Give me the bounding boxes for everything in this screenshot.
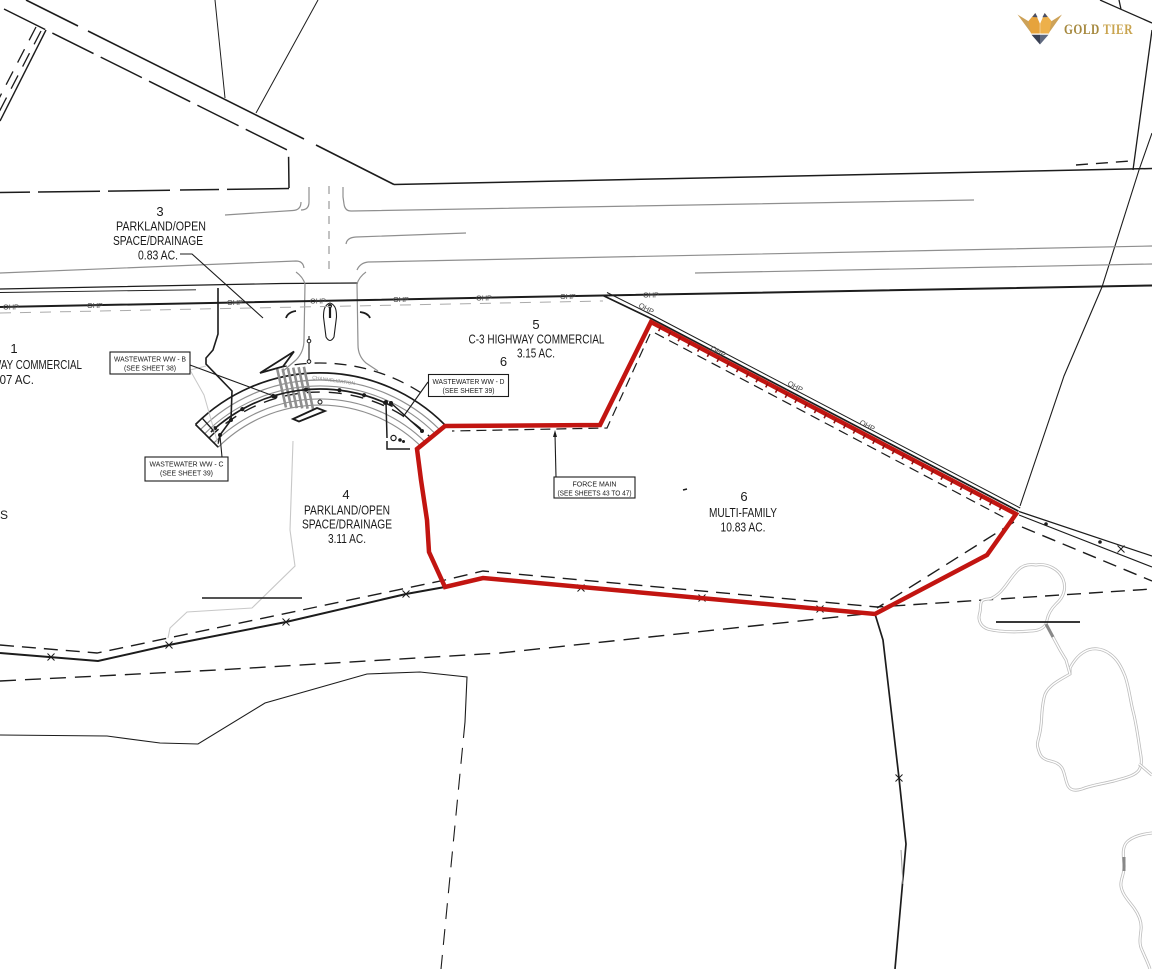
svg-text:4: 4	[342, 487, 349, 502]
svg-text:3.11 AC.: 3.11 AC.	[328, 531, 366, 546]
svg-text:0.83 AC.: 0.83 AC.	[138, 248, 178, 263]
svg-text:WAY COMMERCIAL: WAY COMMERCIAL	[0, 357, 82, 372]
svg-text:10.83 AC.: 10.83 AC.	[721, 520, 766, 535]
svg-text:3.15 AC.: 3.15 AC.	[517, 346, 555, 361]
svg-text:PARKLAND/OPEN: PARKLAND/OPEN	[304, 503, 390, 518]
svg-text:OHP: OHP	[310, 297, 326, 306]
svg-text:6: 6	[740, 489, 747, 504]
svg-text:(SEE SHEET 39): (SEE SHEET 39)	[443, 386, 495, 395]
svg-text:OHP: OHP	[560, 292, 576, 301]
svg-text:OHP: OHP	[227, 298, 243, 307]
svg-text:GOLD TIER: GOLD TIER	[1064, 22, 1133, 38]
svg-text:OHP: OHP	[643, 290, 659, 299]
svg-text:5.07 AC.: 5.07 AC.	[0, 372, 34, 387]
svg-text:PARKLAND/OPEN: PARKLAND/OPEN	[116, 219, 206, 234]
svg-text:SPACE/DRAINAGE: SPACE/DRAINAGE	[302, 517, 392, 532]
svg-text:C-3 HIGHWAY COMMERCIAL: C-3 HIGHWAY COMMERCIAL	[469, 332, 605, 347]
svg-text:S: S	[0, 508, 8, 522]
svg-text:1: 1	[10, 341, 17, 356]
svg-text:5: 5	[532, 317, 539, 332]
svg-text:(SEE SHEET 38): (SEE SHEET 38)	[124, 364, 176, 373]
svg-text:(SEE SHEETS 43 TO 47): (SEE SHEETS 43 TO 47)	[558, 491, 632, 498]
svg-text:FORCE MAIN: FORCE MAIN	[573, 480, 617, 489]
svg-text:WASTEWATER WW - B: WASTEWATER WW - B	[114, 355, 186, 364]
svg-text:SPACE/DRAINAGE: SPACE/DRAINAGE	[113, 233, 203, 248]
svg-text:(SEE SHEET 39): (SEE SHEET 39)	[160, 469, 213, 478]
svg-text:3: 3	[156, 204, 163, 219]
svg-text:OHP: OHP	[3, 302, 19, 311]
svg-text:6: 6	[500, 354, 507, 369]
svg-text:MULTI-FAMILY: MULTI-FAMILY	[709, 505, 777, 520]
svg-text:WASTEWATER WW - D: WASTEWATER WW - D	[433, 377, 505, 386]
svg-text:WASTEWATER WW - C: WASTEWATER WW - C	[150, 460, 224, 469]
svg-text:OHP: OHP	[393, 295, 409, 304]
svg-text:OHP: OHP	[476, 293, 492, 302]
svg-text:OHP: OHP	[87, 301, 103, 310]
